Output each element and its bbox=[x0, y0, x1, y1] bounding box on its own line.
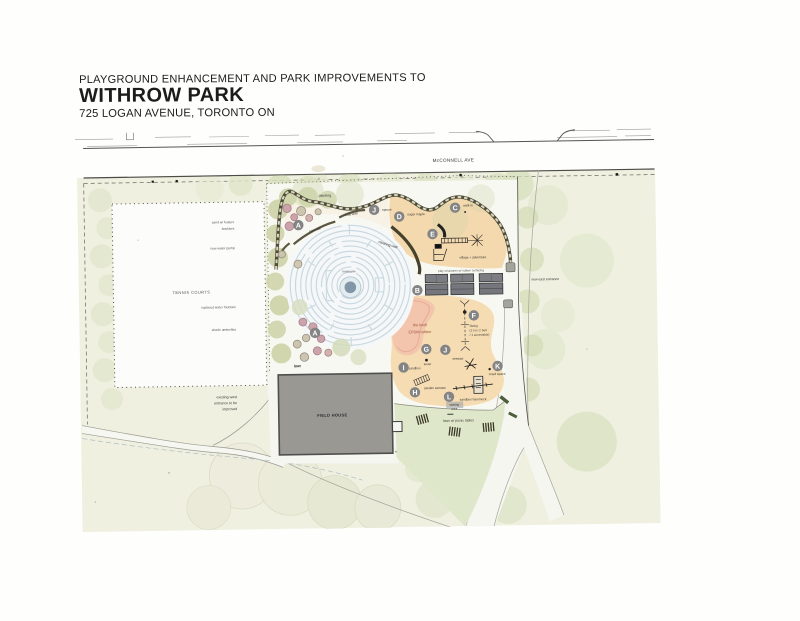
svg-text:shade umbrellas: shade umbrellas bbox=[212, 328, 237, 332]
svg-text:J: J bbox=[372, 207, 376, 214]
svg-text:sandbox: sandbox bbox=[409, 366, 422, 370]
svg-text:the knoll: the knoll bbox=[413, 323, 427, 327]
svg-text:seesaw: seesaw bbox=[452, 357, 464, 361]
svg-text:sugar maple: sugar maple bbox=[407, 212, 425, 216]
svg-text:FIELD HOUSE: FIELD HOUSE bbox=[317, 412, 347, 417]
svg-text:EPDM rubber: EPDM rubber bbox=[409, 330, 433, 334]
svg-text:replaced water fountain: replaced water fountain bbox=[201, 305, 235, 310]
svg-text:spruce: spruce bbox=[382, 208, 392, 212]
svg-text:area: area bbox=[451, 407, 457, 411]
svg-text:/ 1 accessible): / 1 accessible) bbox=[470, 333, 490, 337]
svg-text:A: A bbox=[312, 330, 317, 337]
svg-text:garden seesaw: garden seesaw bbox=[424, 386, 446, 390]
svg-text:village + adventure: village + adventure bbox=[459, 255, 486, 259]
svg-text:teeter: teeter bbox=[424, 362, 432, 366]
svg-text:I: I bbox=[403, 365, 405, 372]
svg-text:sandbox hammock: sandbox hammock bbox=[460, 397, 487, 401]
svg-text:G: G bbox=[424, 347, 430, 354]
svg-text:planting: planting bbox=[319, 194, 332, 198]
svg-text:boulders: boulders bbox=[222, 227, 235, 231]
svg-text:D: D bbox=[397, 214, 402, 221]
svg-text:lawn: lawn bbox=[294, 364, 301, 368]
svg-text:C: C bbox=[453, 205, 458, 212]
svg-text:lawn w/ picnic tables: lawn w/ picnic tables bbox=[443, 418, 474, 422]
svg-text:walk in: walk in bbox=[463, 203, 473, 207]
svg-text:existing west: existing west bbox=[216, 395, 237, 399]
svg-text:B: B bbox=[415, 288, 420, 295]
svg-text:crawl space: crawl space bbox=[489, 372, 506, 376]
svg-text:treehouse: treehouse bbox=[342, 269, 356, 273]
svg-text:new water pump: new water pump bbox=[210, 246, 234, 250]
svg-text:Swing: Swing bbox=[469, 324, 478, 328]
svg-text:sand w/ feature: sand w/ feature bbox=[212, 220, 235, 224]
svg-text:E: E bbox=[430, 232, 435, 239]
svg-text:TENNIS COURTS: TENNIS COURTS bbox=[172, 290, 210, 296]
svg-text:new east entrance: new east entrance bbox=[531, 277, 559, 281]
svg-text:K: K bbox=[495, 364, 500, 371]
svg-text:play structures w/ rubber surf: play structures w/ rubber surfacing bbox=[438, 268, 484, 273]
svg-text:H: H bbox=[412, 390, 417, 397]
svg-text:A: A bbox=[296, 223, 301, 230]
svg-text:McCONNELL AVE: McCONNELL AVE bbox=[433, 157, 475, 163]
svg-text:entrance to be: entrance to be bbox=[214, 401, 237, 405]
svg-text:J: J bbox=[443, 347, 447, 354]
svg-text:improved: improved bbox=[222, 407, 237, 411]
